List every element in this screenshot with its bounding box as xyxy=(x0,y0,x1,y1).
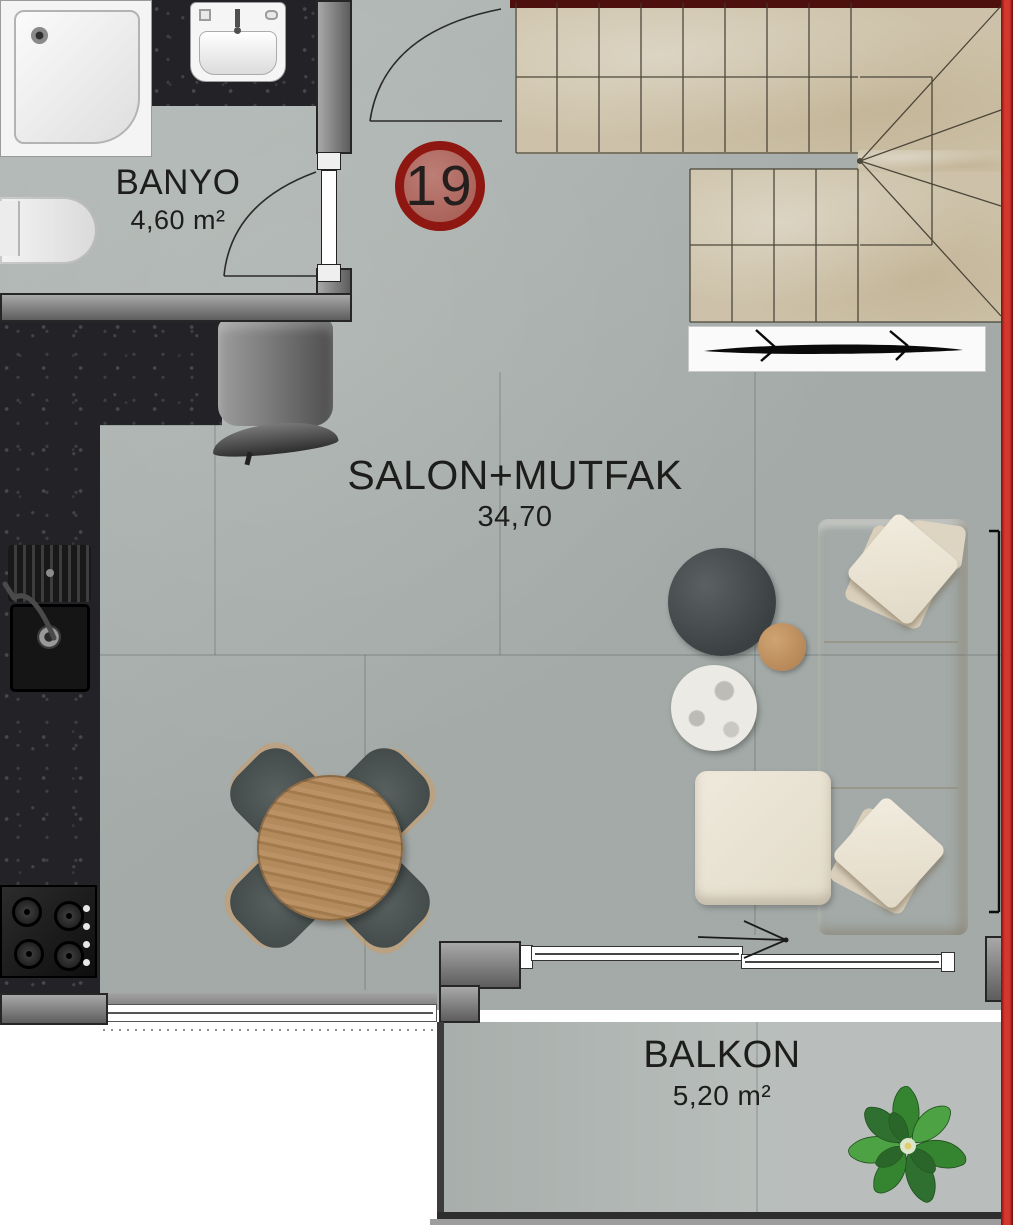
handrail-icon xyxy=(704,330,963,361)
room-label-balkon: BALKON xyxy=(572,1036,872,1076)
unit-number-badge: 19 xyxy=(395,141,485,231)
stair-tread-lines xyxy=(516,2,1003,322)
room-area-banyo: 4,60 m² xyxy=(28,206,328,234)
unit-number: 19 xyxy=(405,153,474,219)
room-area-salon-mutfak: 34,70 xyxy=(315,502,715,532)
floor-plan-unit-19: 19 BANYO 4,60 m² SALON+MUTFAK 34,70 BALK… xyxy=(0,0,1013,1225)
door-direction-arrow xyxy=(698,921,788,958)
entry-door-swing xyxy=(370,9,502,121)
room-area-balkon: 5,20 m² xyxy=(572,1081,872,1110)
room-label-banyo: BANYO xyxy=(28,165,328,202)
dimension-bracket xyxy=(989,531,999,912)
kitchen-faucet-icon xyxy=(5,584,54,638)
room-label-salon-mutfak: SALON+MUTFAK xyxy=(315,454,715,497)
